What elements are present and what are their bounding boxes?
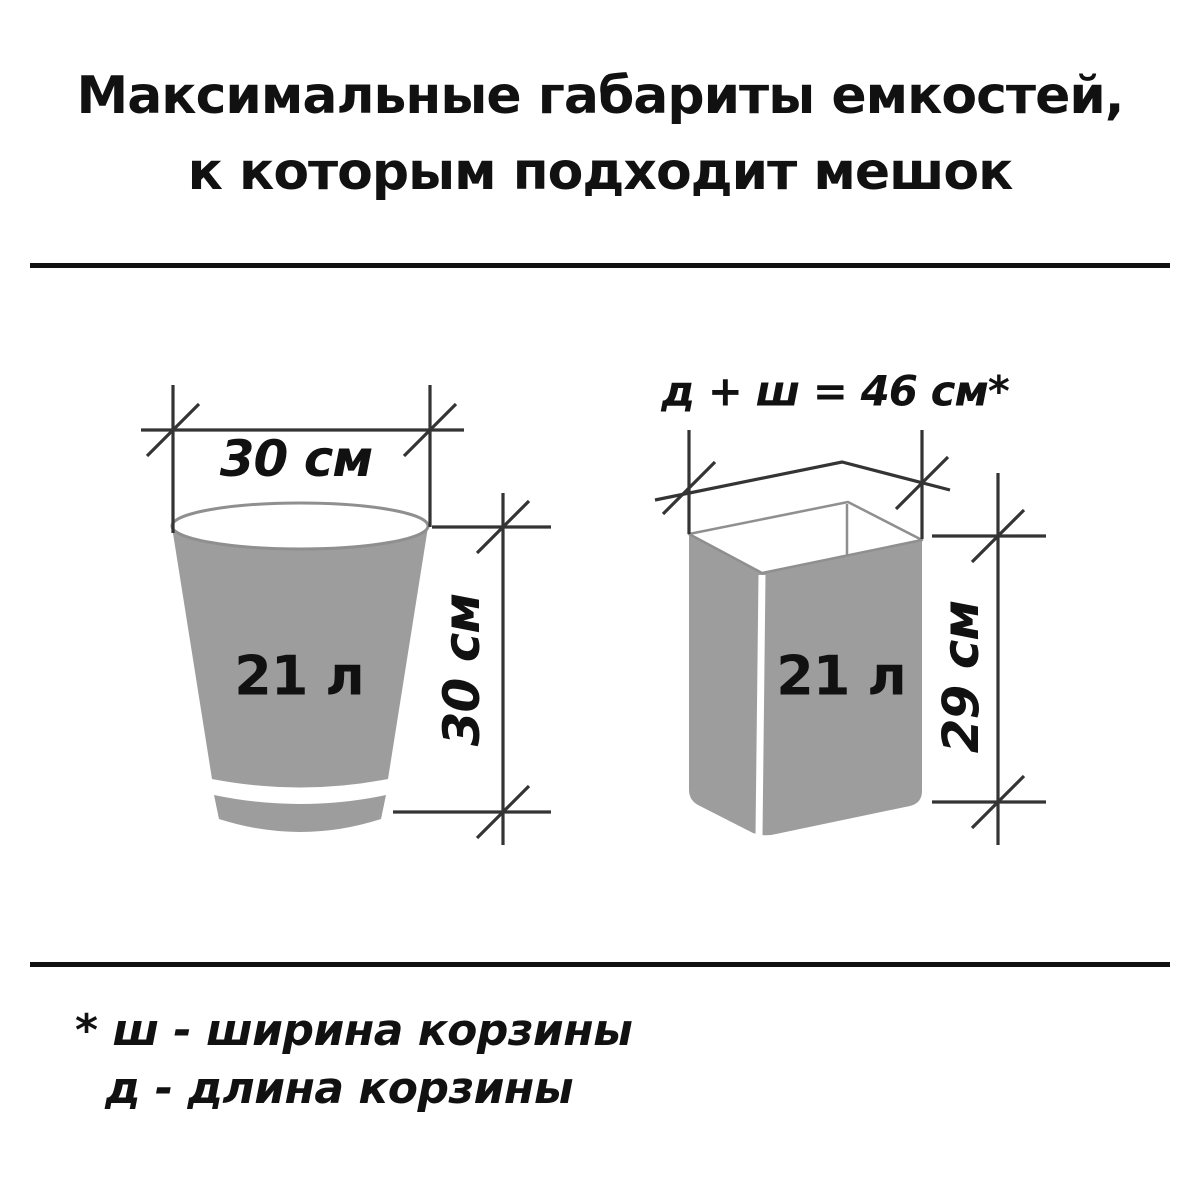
bucket-rim-opening	[172, 503, 428, 549]
bucket-width-label: 30 см	[220, 430, 373, 488]
footnote-line-1: * ш - ширина корзины	[75, 1002, 632, 1060]
basket-formula-label: д + ш = 46 см*	[661, 367, 1009, 416]
infographic-page: Максимальные габариты емкостей, к которы…	[0, 0, 1200, 1200]
basket-height-label: 29 см	[932, 601, 990, 754]
bucket-base	[214, 795, 386, 832]
bucket-volume-label: 21 л	[234, 645, 364, 708]
basket-volume-label: 21 л	[776, 645, 906, 708]
footnote-line-2: д - длина корзины	[75, 1060, 632, 1118]
dimension-line-bent	[655, 462, 950, 500]
basket-front-edge-highlight	[759, 575, 762, 836]
bucket-height-label: 30 см	[433, 594, 491, 747]
footnote: * ш - ширина корзины д - длина корзины	[75, 1002, 632, 1118]
